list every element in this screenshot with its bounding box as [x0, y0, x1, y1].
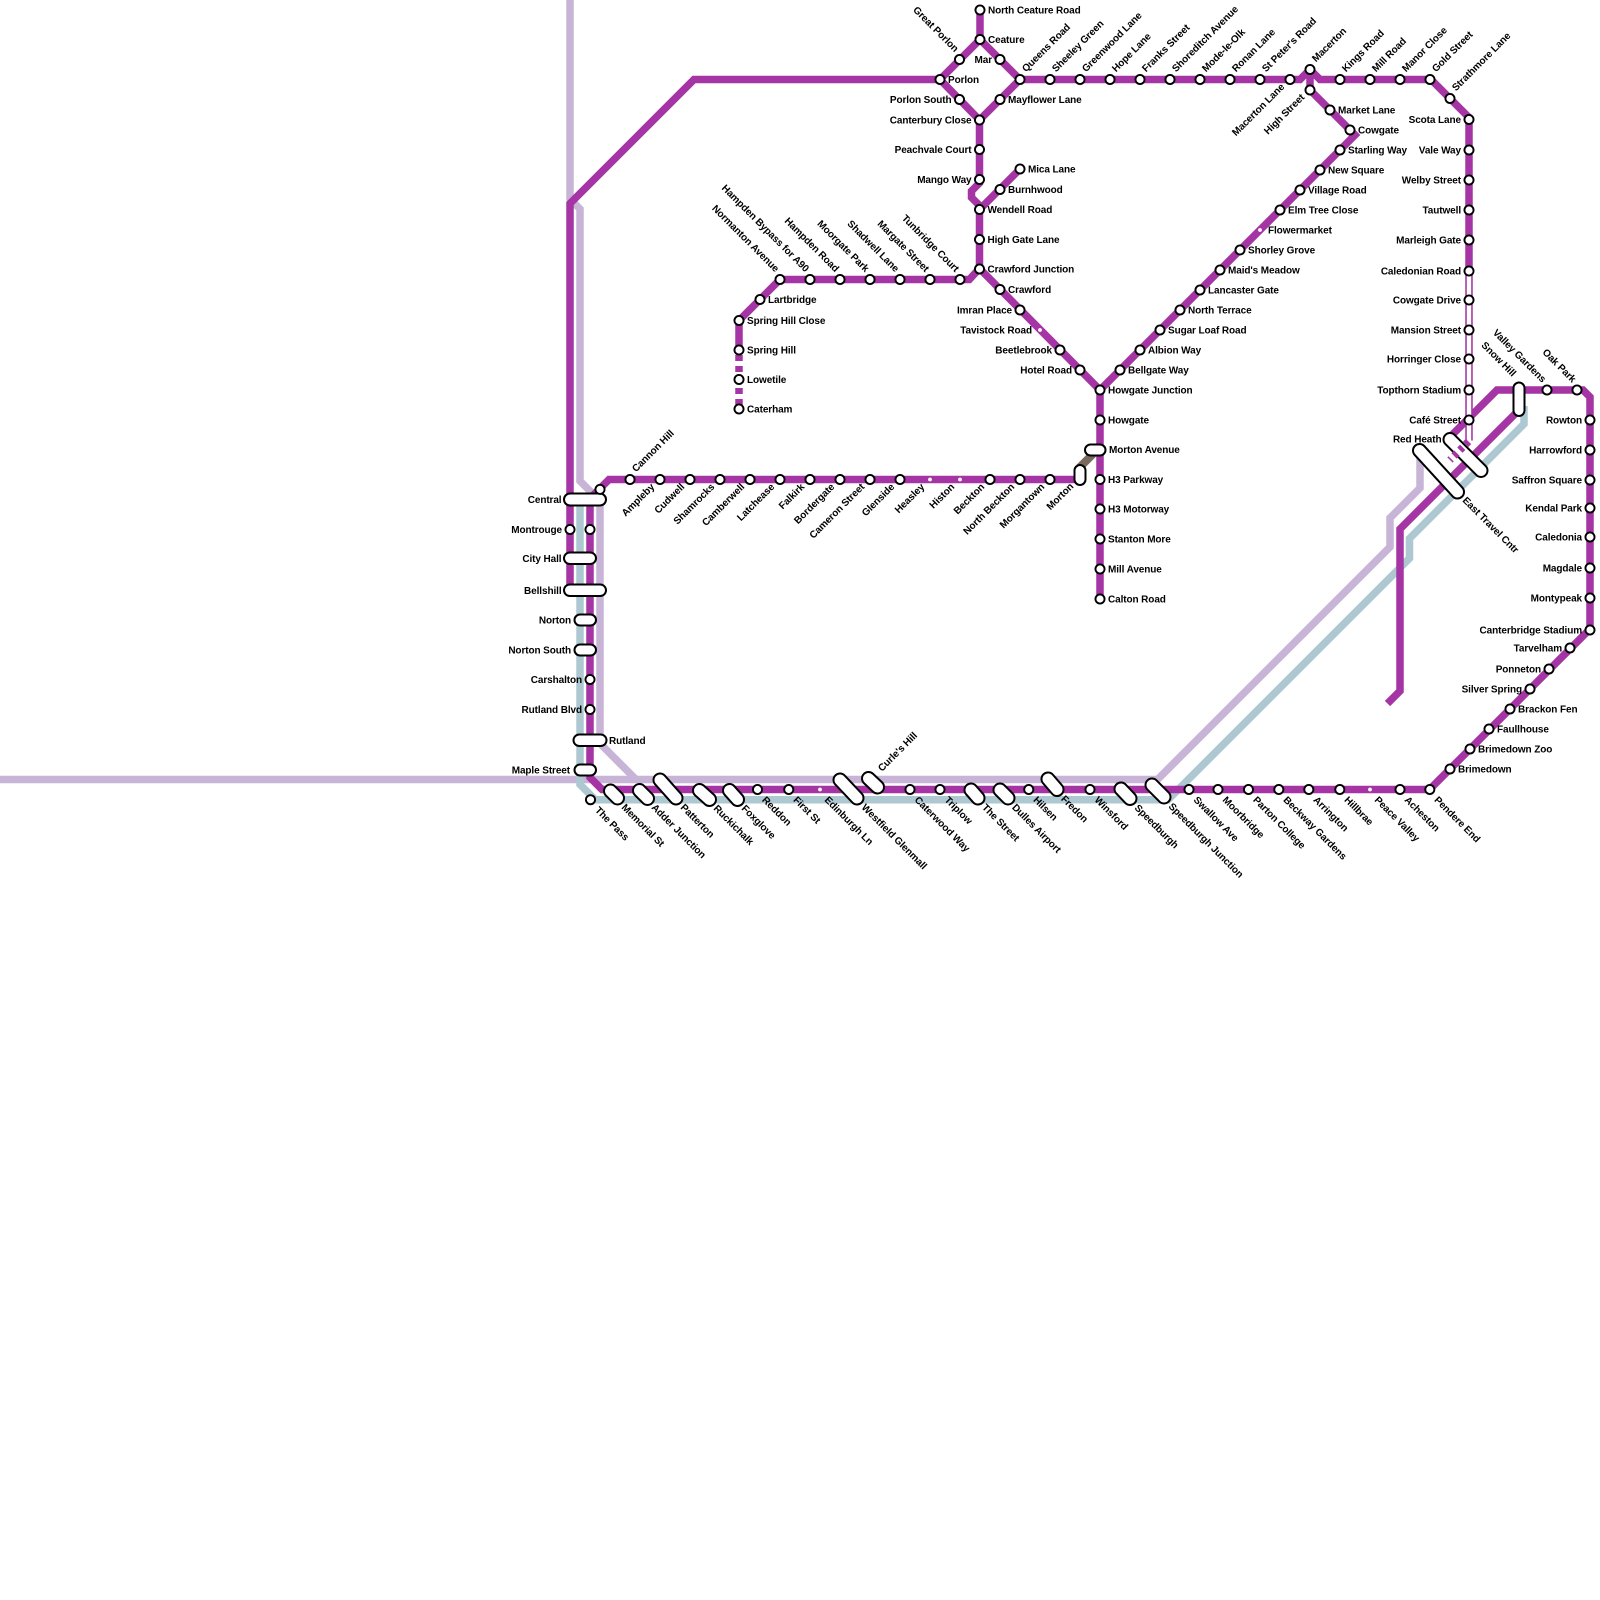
svg-text:High Gate Lane: High Gate Lane: [988, 235, 1060, 246]
svg-text:Brimedown: Brimedown: [1458, 765, 1512, 776]
svg-text:Ponneton: Ponneton: [1496, 665, 1541, 676]
svg-text:Carshalton: Carshalton: [531, 675, 582, 686]
svg-text:Horringer Close: Horringer Close: [1387, 355, 1462, 366]
svg-text:H3 Parkway: H3 Parkway: [1108, 475, 1164, 486]
svg-text:Brackon Fen: Brackon Fen: [1518, 705, 1577, 716]
svg-text:Montypeak: Montypeak: [1531, 594, 1583, 605]
svg-text:Canterbridge Stadium: Canterbridge Stadium: [1480, 626, 1583, 637]
svg-text:Rutland: Rutland: [609, 736, 646, 747]
svg-text:Maid's Meadow: Maid's Meadow: [1228, 266, 1300, 277]
svg-text:Mayflower Lane: Mayflower Lane: [1008, 95, 1082, 106]
svg-text:Rutland Blvd: Rutland Blvd: [522, 705, 582, 716]
svg-text:Caterham: Caterham: [747, 405, 793, 416]
svg-text:Caledonian Road: Caledonian Road: [1381, 267, 1461, 278]
svg-text:Tarvelham: Tarvelham: [1514, 644, 1563, 655]
svg-text:Spring Hill: Spring Hill: [747, 346, 796, 357]
svg-text:Scota Lane: Scota Lane: [1409, 115, 1462, 126]
svg-text:North Terrace: North Terrace: [1188, 306, 1252, 317]
svg-text:Tautwell: Tautwell: [1423, 206, 1462, 217]
svg-text:Bellshill: Bellshill: [524, 586, 562, 597]
svg-text:Lartbridge: Lartbridge: [768, 295, 817, 306]
svg-text:Montrouge: Montrouge: [511, 525, 562, 536]
svg-text:Bellgate Way: Bellgate Way: [1128, 366, 1189, 377]
svg-text:Howgate: Howgate: [1108, 416, 1150, 427]
svg-text:Porlon: Porlon: [948, 75, 979, 86]
svg-text:Mill Avenue: Mill Avenue: [1108, 565, 1162, 576]
svg-text:Canterbury Close: Canterbury Close: [890, 116, 972, 127]
svg-text:Norton South: Norton South: [508, 646, 571, 657]
svg-text:Mango Way: Mango Way: [917, 175, 972, 186]
svg-text:Stanton More: Stanton More: [1108, 535, 1171, 546]
svg-text:Tavistock Road: Tavistock Road: [960, 326, 1032, 337]
svg-text:Howgate Junction: Howgate Junction: [1108, 386, 1193, 397]
svg-text:Welby Street: Welby Street: [1402, 176, 1462, 187]
svg-text:Porlon South: Porlon South: [890, 95, 952, 106]
svg-text:Marleigh Gate: Marleigh Gate: [1396, 236, 1461, 247]
svg-text:City Hall: City Hall: [522, 554, 561, 565]
svg-text:Crawford Junction: Crawford Junction: [988, 265, 1075, 276]
svg-text:Village Road: Village Road: [1308, 186, 1367, 197]
svg-text:Cowgate Drive: Cowgate Drive: [1393, 296, 1462, 307]
svg-text:Imran Place: Imran Place: [957, 306, 1013, 317]
svg-text:Sugar Loaf Road: Sugar Loaf Road: [1168, 326, 1247, 337]
svg-text:Shorley Grove: Shorley Grove: [1248, 246, 1316, 257]
svg-text:Harrowford: Harrowford: [1529, 446, 1582, 457]
svg-text:Maple Street: Maple Street: [512, 766, 571, 777]
svg-text:Faullhouse: Faullhouse: [1497, 725, 1549, 736]
svg-text:Mansion Street: Mansion Street: [1391, 326, 1462, 337]
svg-text:Spring Hill Close: Spring Hill Close: [747, 316, 826, 327]
svg-text:Brimedown Zoo: Brimedown Zoo: [1478, 745, 1552, 756]
svg-text:Magdale: Magdale: [1543, 564, 1583, 575]
svg-text:Beetlebrook: Beetlebrook: [995, 346, 1052, 357]
svg-text:Café Street: Café Street: [1409, 416, 1461, 427]
svg-text:Crawford: Crawford: [1008, 285, 1051, 296]
svg-text:Mica Lane: Mica Lane: [1028, 165, 1076, 176]
svg-text:Flowermarket: Flowermarket: [1268, 226, 1333, 237]
svg-text:Peachvale Court: Peachvale Court: [895, 145, 973, 156]
svg-text:Calton Road: Calton Road: [1108, 595, 1166, 606]
svg-text:Lowetile: Lowetile: [747, 375, 787, 386]
svg-text:Market Lane: Market Lane: [1338, 106, 1396, 117]
svg-text:Mar: Mar: [975, 55, 993, 66]
svg-text:Central: Central: [528, 495, 562, 506]
svg-text:Norton: Norton: [539, 616, 571, 627]
svg-text:Rowton: Rowton: [1546, 416, 1582, 427]
svg-text:Wendell Road: Wendell Road: [988, 205, 1053, 216]
svg-text:Caledonia: Caledonia: [1535, 533, 1582, 544]
svg-text:New Square: New Square: [1328, 166, 1385, 177]
svg-text:Morton Avenue: Morton Avenue: [1109, 445, 1180, 456]
svg-text:Starling Way: Starling Way: [1348, 146, 1408, 157]
svg-text:Lancaster Gate: Lancaster Gate: [1208, 286, 1279, 297]
svg-text:Albion Way: Albion Way: [1148, 346, 1202, 357]
svg-text:Burnhwood: Burnhwood: [1008, 185, 1063, 196]
svg-text:Saffron Square: Saffron Square: [1512, 476, 1583, 487]
svg-text:Silver Spring: Silver Spring: [1462, 685, 1522, 696]
svg-text:Vale Way: Vale Way: [1419, 146, 1462, 157]
svg-text:H3 Motorway: H3 Motorway: [1108, 505, 1170, 516]
svg-text:Hotel Road: Hotel Road: [1020, 366, 1072, 377]
svg-text:Elm Tree Close: Elm Tree Close: [1288, 206, 1359, 217]
svg-text:Ceature: Ceature: [988, 35, 1025, 46]
svg-text:Topthorn Stadium: Topthorn Stadium: [1377, 386, 1461, 397]
svg-text:Cowgate: Cowgate: [1358, 126, 1400, 137]
svg-text:Kendal Park: Kendal Park: [1525, 504, 1582, 515]
svg-text:North Ceature Road: North Ceature Road: [988, 6, 1081, 17]
